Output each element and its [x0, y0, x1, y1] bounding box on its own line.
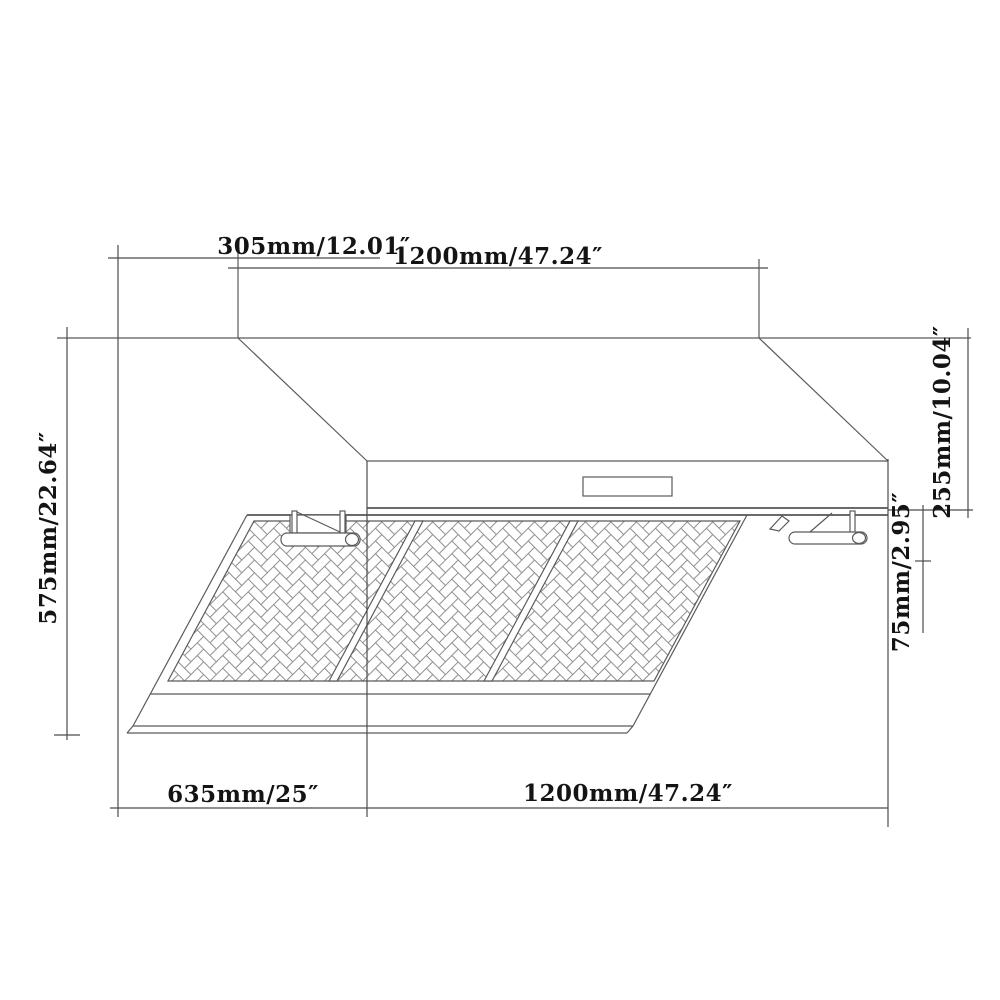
housing-lip-right: [627, 726, 633, 733]
housing-lip-left: [127, 726, 133, 733]
canopy-right-slope: [759, 338, 888, 461]
control-panel: [583, 477, 672, 496]
dim-label-hood-depth: 635mm/25″: [167, 781, 319, 808]
handle-post: [340, 511, 345, 533]
dim-label-duct-depth: 305mm/12.01″: [217, 233, 410, 260]
baffle-filter-pattern: [168, 521, 740, 681]
handle-post: [850, 511, 855, 533]
dim-label-duct-width: 1200mm/47.24″: [393, 243, 603, 270]
dim-label-filter-drop: 75mm/2.95″: [888, 492, 915, 652]
filter-clip: [770, 516, 789, 531]
dimension-diagram: 305mm/12.01″ 1200mm/47.24″ 575mm/22.64″ …: [0, 0, 1000, 1000]
handle-post: [292, 511, 297, 533]
dim-label-hood-width: 1200mm/47.24″: [523, 780, 733, 807]
filter-handle-right: [770, 511, 867, 544]
filter-housing: [127, 515, 888, 733]
canopy-left-slope: [238, 338, 367, 461]
dim-label-total-height: 575mm/22.64″: [35, 431, 62, 624]
handle-bar-cap: [346, 534, 359, 546]
handle-bar-cap: [853, 533, 866, 544]
dim-label-canopy-height: 255mm/10.04″: [929, 325, 956, 518]
hood-outline: [57, 245, 971, 508]
